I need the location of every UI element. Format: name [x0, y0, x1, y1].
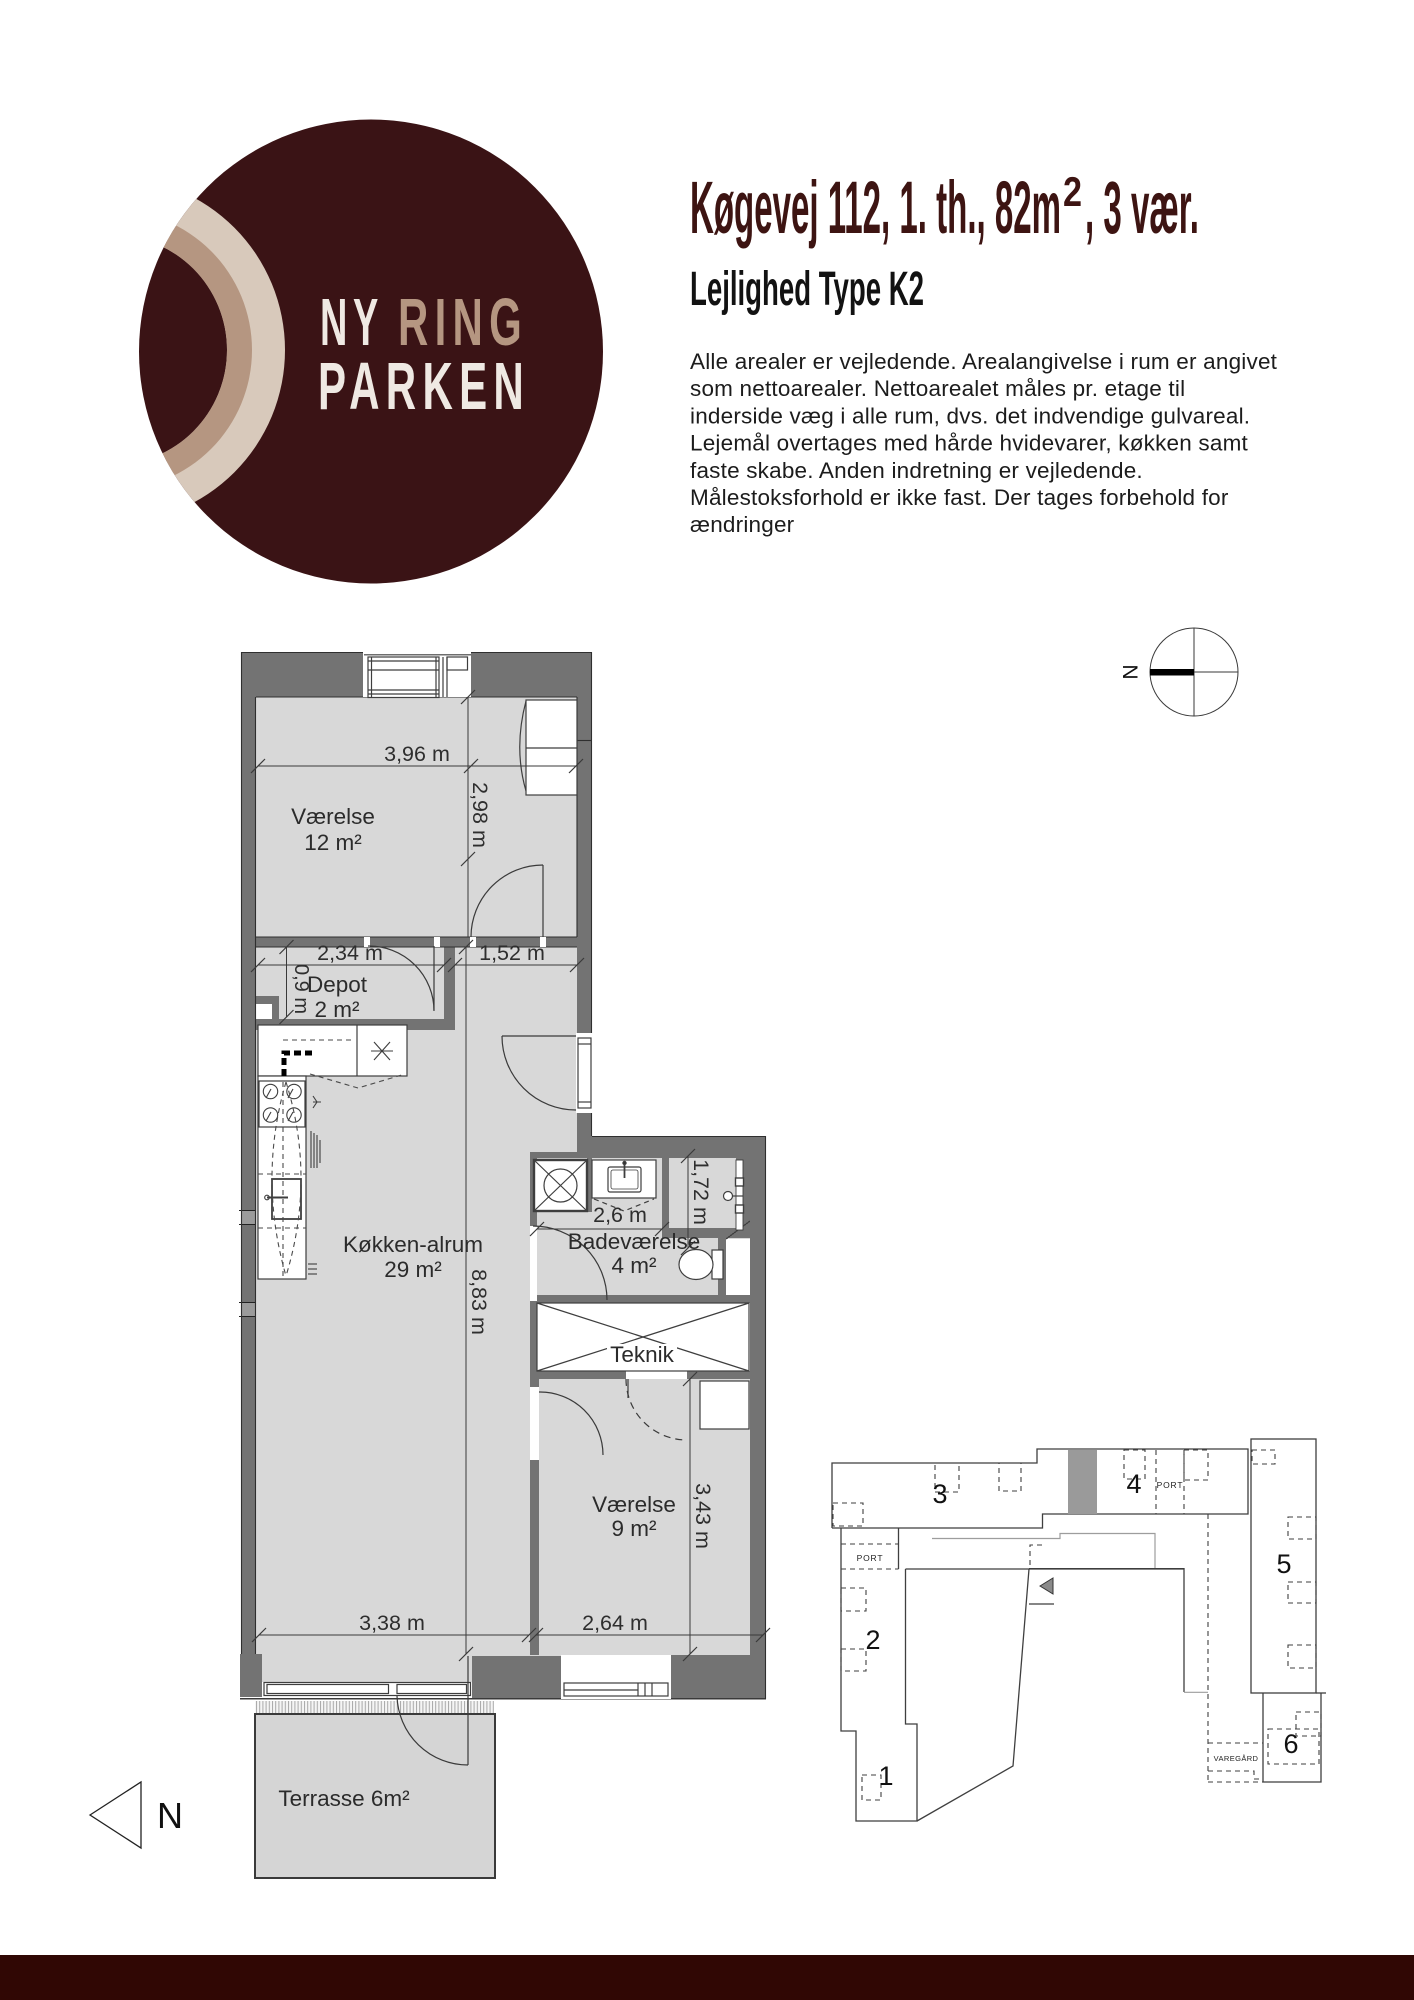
svg-text:Værelse: Værelse: [291, 804, 375, 829]
svg-text:Målestoksforhold er ikke fast.: Målestoksforhold er ikke fast. Der tages…: [690, 485, 1229, 510]
svg-text:3: 3: [932, 1479, 947, 1509]
svg-text:8,83 m: 8,83 m: [467, 1269, 491, 1335]
svg-text:2,34 m: 2,34 m: [317, 941, 383, 965]
svg-text:1: 1: [878, 1761, 893, 1791]
svg-text:2,64 m: 2,64 m: [582, 1611, 648, 1635]
svg-text:Terrasse 6m²: Terrasse 6m²: [278, 1786, 410, 1811]
svg-text:, 3 vær.: , 3 vær.: [1085, 166, 1199, 249]
svg-text:9 m²: 9 m²: [612, 1516, 658, 1541]
svg-text:inderside væg i alle rum, dvs.: inderside væg i alle rum, dvs. det indve…: [690, 403, 1250, 428]
svg-text:2: 2: [865, 1625, 880, 1655]
svg-text:1,52 m: 1,52 m: [479, 941, 545, 965]
svg-text:Køkken-alrum: Køkken-alrum: [343, 1232, 483, 1257]
svg-text:Teknik: Teknik: [610, 1342, 675, 1367]
svg-text:Værelse: Værelse: [592, 1492, 676, 1517]
svg-text:2: 2: [1063, 168, 1082, 215]
svg-text:2,6 m: 2,6 m: [593, 1203, 647, 1227]
svg-text:4: 4: [1126, 1469, 1141, 1499]
svg-text:2,98 m: 2,98 m: [468, 782, 492, 848]
svg-text:Lejlighed Type K2: Lejlighed Type K2: [690, 263, 924, 316]
svg-text:PARKEN: PARKEN: [318, 349, 530, 424]
svg-text:4 m²: 4 m²: [612, 1253, 658, 1278]
svg-text:PORT: PORT: [1157, 1480, 1184, 1490]
svg-text:PORT: PORT: [857, 1553, 884, 1563]
svg-text:3,38 m: 3,38 m: [359, 1611, 425, 1635]
svg-text:faste skabe. Anden indretning: faste skabe. Anden indretning er vejlede…: [690, 458, 1143, 483]
svg-text:1,72 m: 1,72 m: [689, 1159, 713, 1225]
svg-text:2 m²: 2 m²: [315, 997, 361, 1022]
svg-text:Depot: Depot: [307, 972, 368, 997]
svg-text:12 m²: 12 m²: [304, 830, 362, 855]
svg-text:ændringer: ændringer: [690, 512, 795, 537]
svg-text:5: 5: [1276, 1549, 1291, 1579]
svg-text:Badeværelse: Badeværelse: [568, 1229, 701, 1254]
svg-text:3,43 m: 3,43 m: [691, 1483, 715, 1549]
svg-text:29 m²: 29 m²: [384, 1257, 442, 1282]
svg-text:Alle arealer er vejledende. Ar: Alle arealer er vejledende. Arealangivel…: [690, 349, 1278, 374]
svg-text:som nettoarealer. Nettoarealet: som nettoarealer. Nettoarealet måles pr.…: [690, 376, 1185, 401]
svg-text:N: N: [1118, 664, 1141, 679]
svg-text:3,96 m: 3,96 m: [384, 742, 450, 766]
svg-text:6: 6: [1283, 1729, 1298, 1759]
svg-text:Lejemål overtages med hårde hv: Lejemål overtages med hårde hvidevarer, …: [690, 431, 1249, 456]
svg-text:Køgevej 112, 1. th., 82m: Køgevej 112, 1. th., 82m: [690, 166, 1061, 249]
svg-text:VAREGÅRD: VAREGÅRD: [1214, 1754, 1259, 1763]
svg-text:N: N: [157, 1795, 183, 1836]
